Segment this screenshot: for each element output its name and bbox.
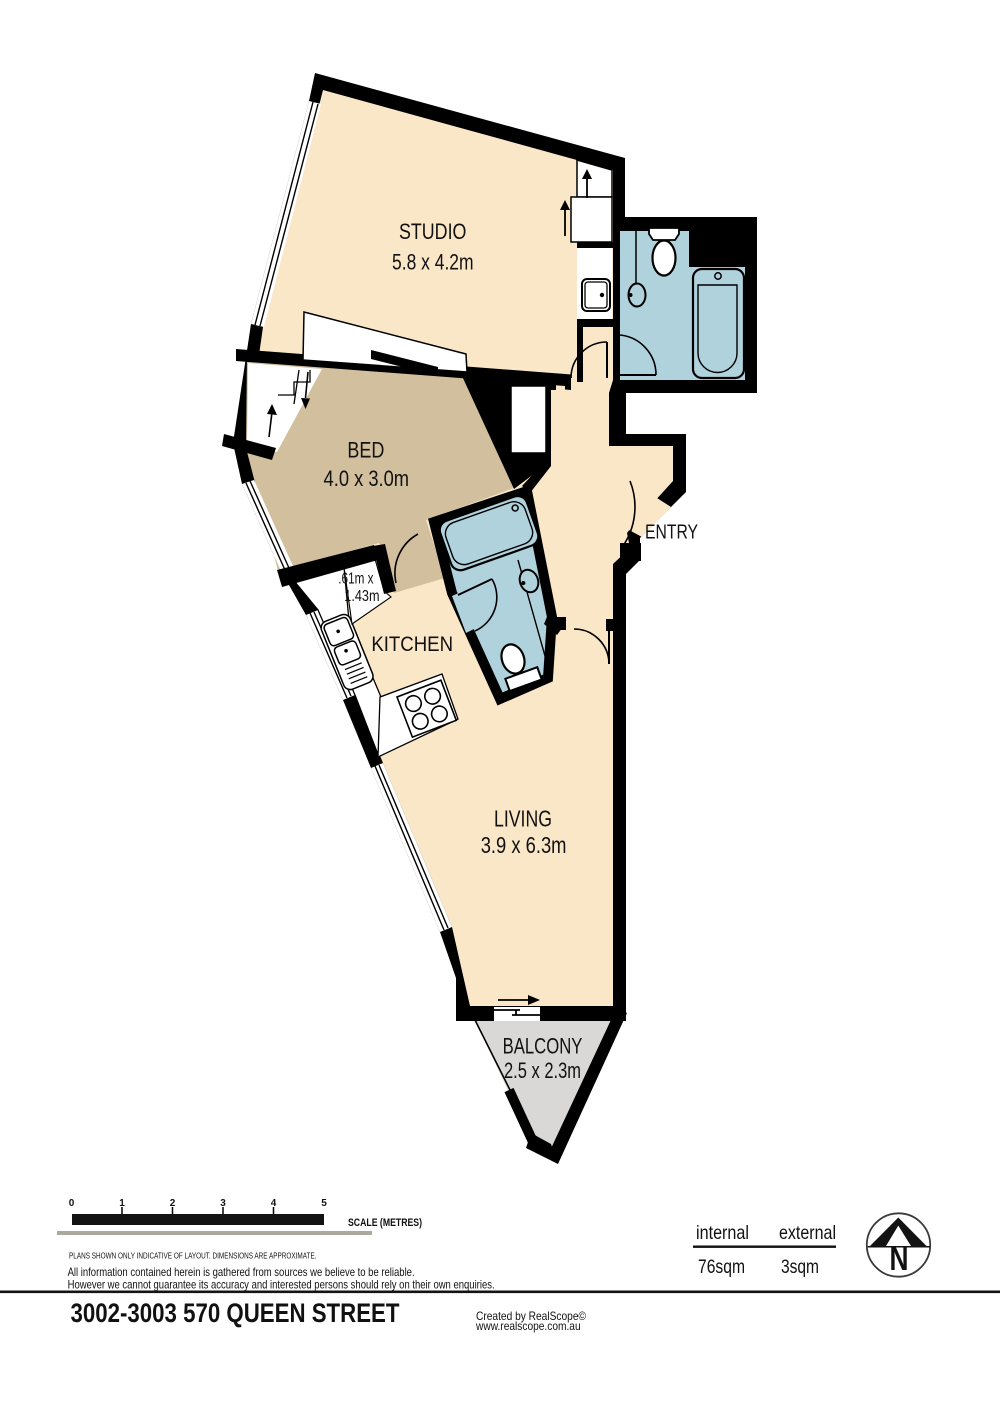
svg-text:N: N [890, 1240, 909, 1278]
svg-text:5: 5 [321, 1198, 327, 1209]
svg-text:3.9 x 6.3m: 3.9 x 6.3m [481, 832, 567, 858]
svg-text:KITCHEN: KITCHEN [371, 632, 453, 656]
svg-text:2.5 x 2.3m: 2.5 x 2.3m [504, 1058, 581, 1083]
svg-text:.61m x: .61m x [338, 571, 373, 588]
svg-text:4.0 x 3.0m: 4.0 x 3.0m [324, 466, 410, 491]
svg-text:ENTRY: ENTRY [645, 521, 698, 544]
svg-text:external: external [779, 1222, 836, 1244]
svg-text:PLANS SHOWN ONLY INDICATIVE OF: PLANS SHOWN ONLY INDICATIVE OF LAYOUT. D… [69, 1251, 317, 1261]
svg-text:1.43m: 1.43m [344, 588, 379, 605]
svg-text:However we cannot guarantee it: However we cannot guarantee its accuracy… [68, 1278, 495, 1292]
svg-text:76sqm: 76sqm [698, 1257, 745, 1278]
svg-text:BED: BED [347, 438, 384, 463]
svg-text:5.8 x 4.2m: 5.8 x 4.2m [392, 250, 474, 275]
svg-text:internal: internal [696, 1222, 749, 1244]
svg-text:www.realscope.com.au: www.realscope.com.au [475, 1319, 580, 1333]
svg-text:3002-3003 570 QUEEN STREET: 3002-3003 570 QUEEN STREET [71, 1298, 400, 1328]
svg-text:0: 0 [69, 1198, 75, 1209]
svg-text:STUDIO: STUDIO [399, 219, 467, 244]
svg-text:3sqm: 3sqm [781, 1257, 819, 1278]
svg-text:BALCONY: BALCONY [503, 1034, 583, 1059]
svg-text:SCALE (METRES): SCALE (METRES) [348, 1217, 422, 1229]
svg-text:LIVING: LIVING [494, 806, 552, 832]
